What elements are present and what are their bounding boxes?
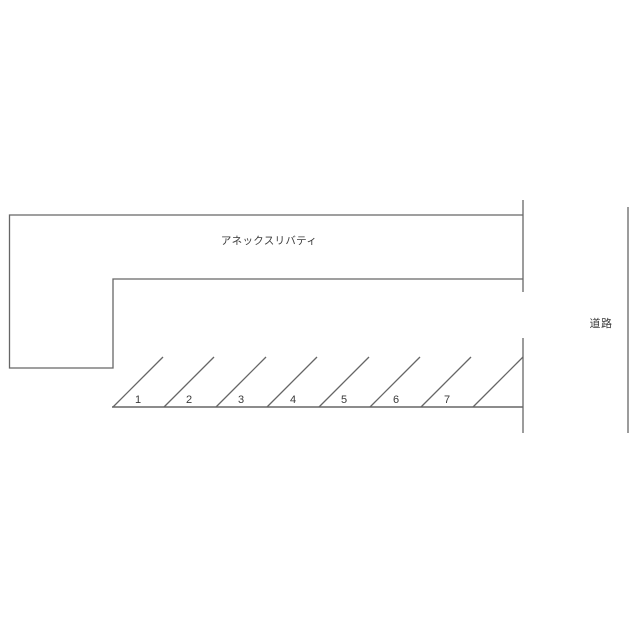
- building-label: アネックスリバティ: [221, 235, 317, 247]
- parking-layout-diagram: アネックスリバティ 1 2 3 4 5 6 7 道路: [0, 0, 640, 640]
- parking-space-number: 2: [186, 394, 192, 406]
- parking-space-number: 7: [444, 394, 450, 406]
- page: { "diagram": { "building_label": "アネックスリ…: [0, 0, 640, 640]
- parking-space-number: 4: [290, 394, 296, 406]
- parking-space-number: 5: [341, 394, 347, 406]
- parking-space-number: 3: [238, 394, 244, 406]
- layout-drawing: アネックスリバティ 1 2 3 4 5 6 7 道路: [0, 0, 640, 640]
- road-label: 道路: [590, 316, 613, 330]
- parking-space-number: 6: [393, 394, 399, 406]
- parking-divider: [473, 357, 523, 407]
- parking-space-number: 1: [135, 394, 141, 406]
